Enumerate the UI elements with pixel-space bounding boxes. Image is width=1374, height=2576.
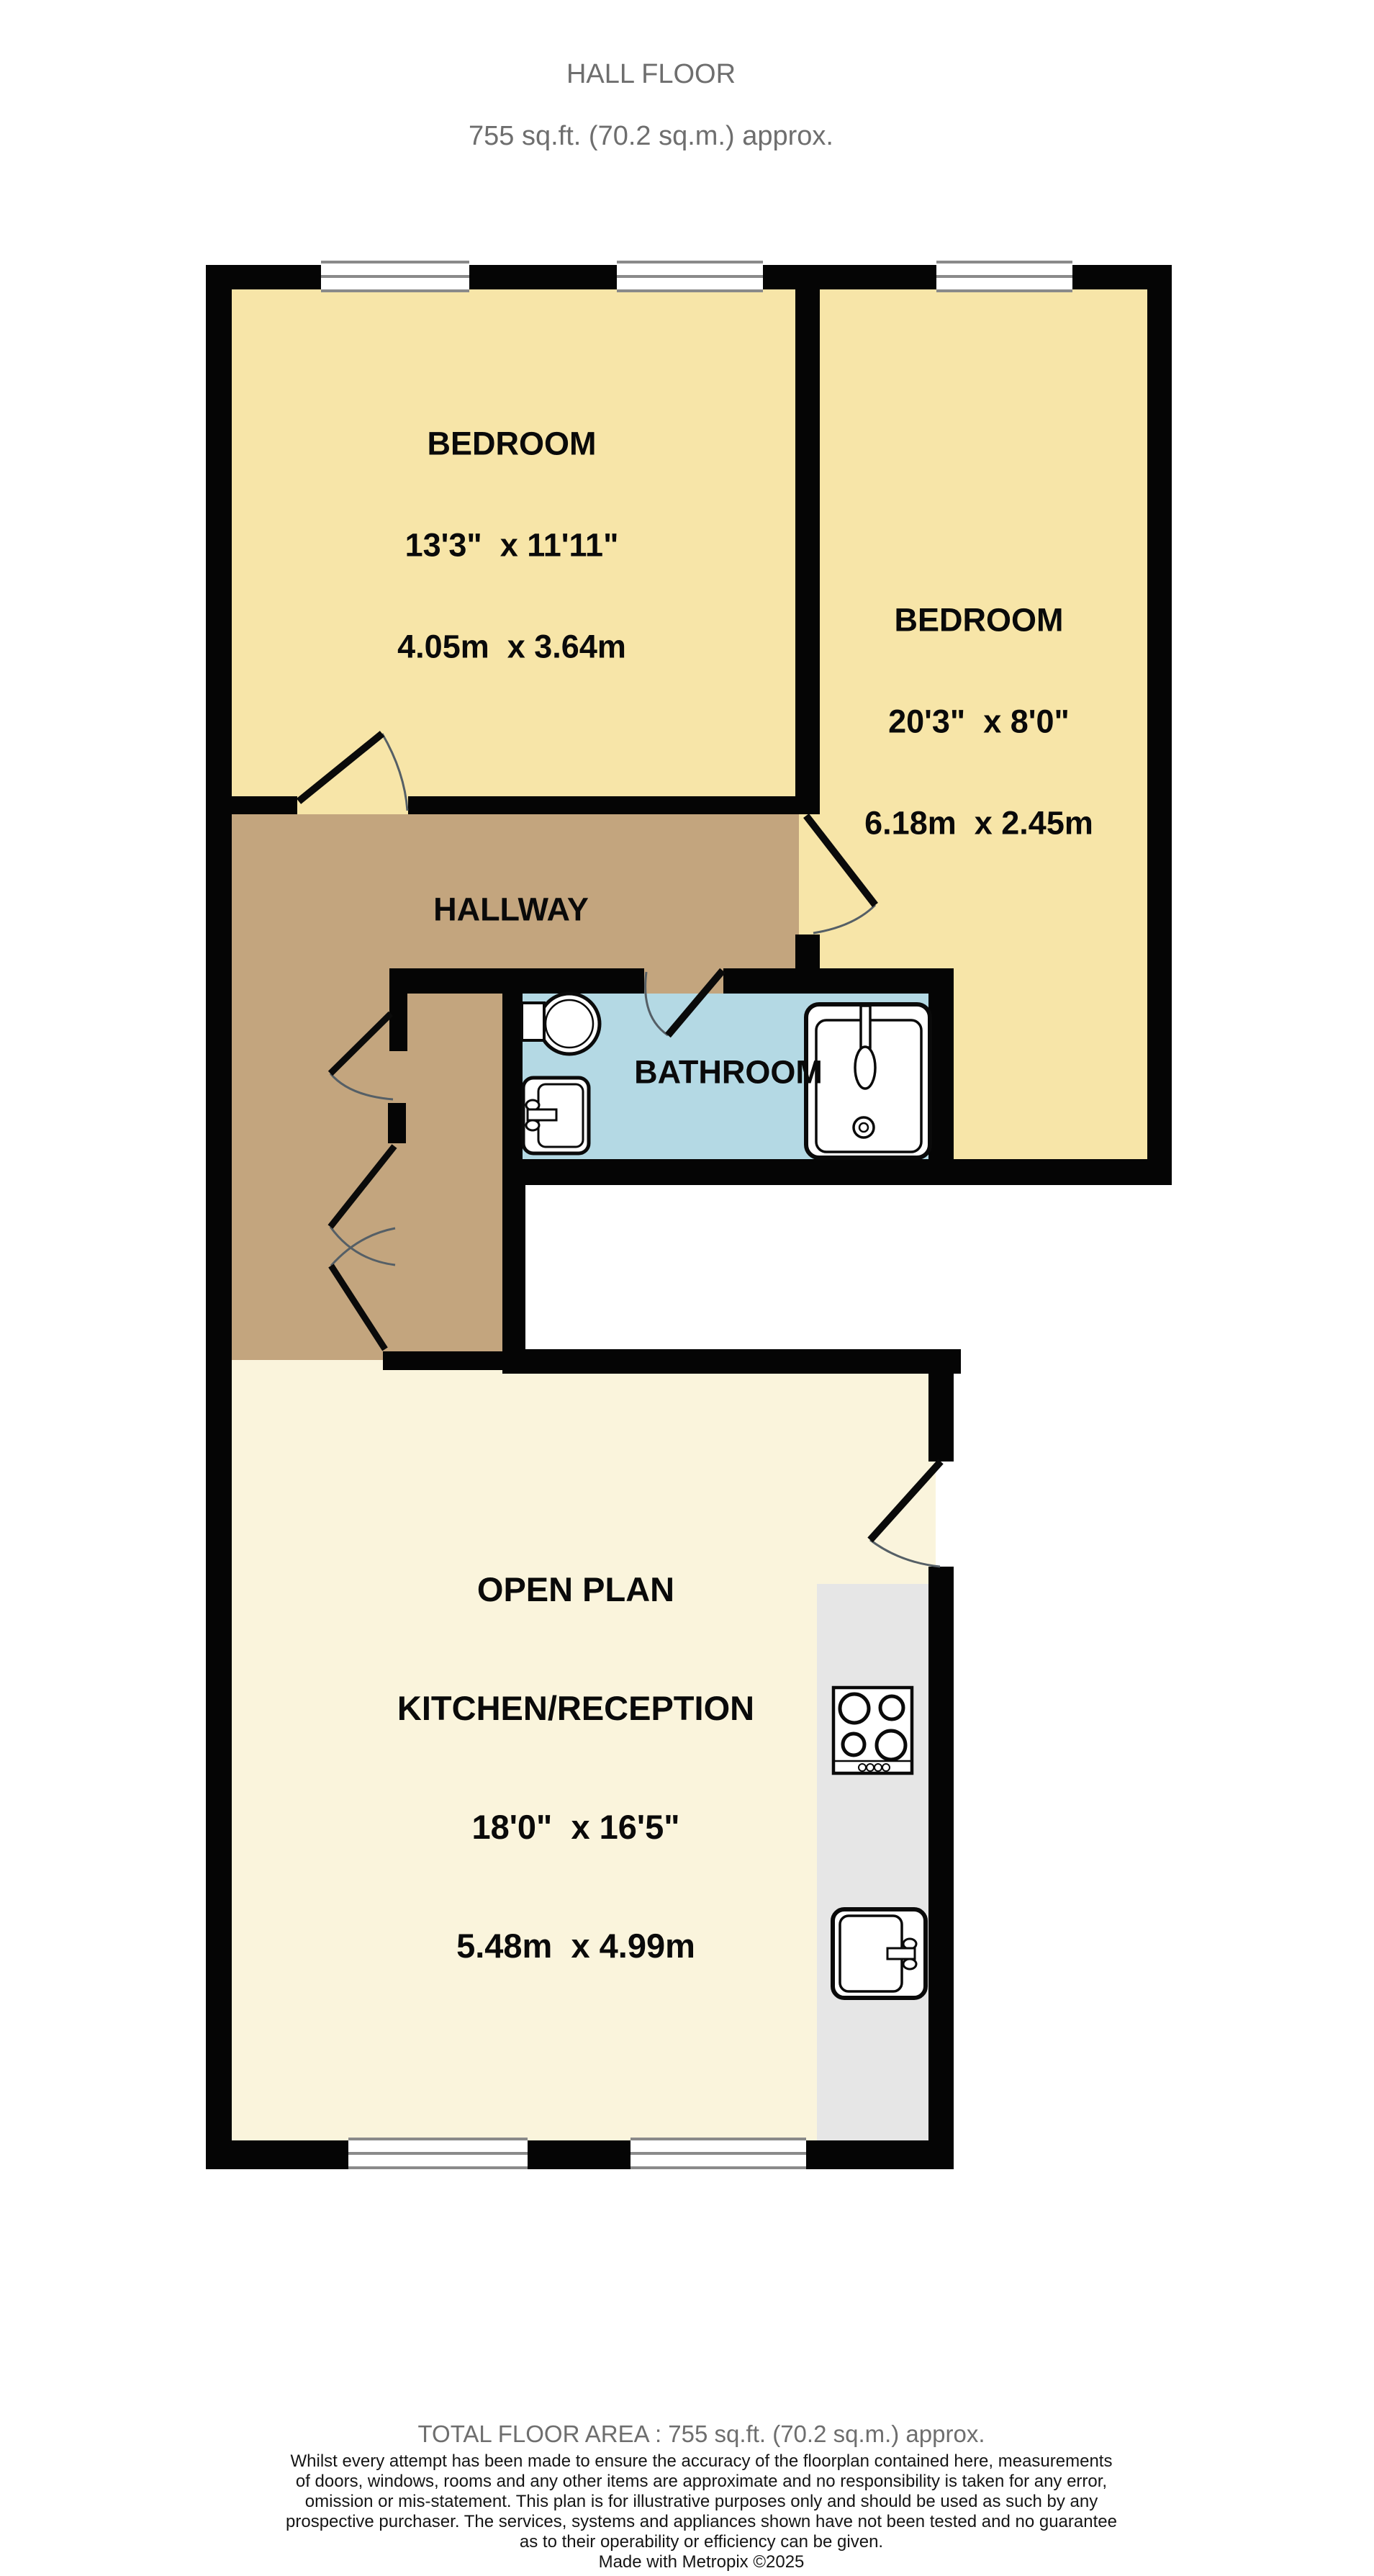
- bedroom2-imperial: 20'3" x 8'0": [864, 705, 1093, 739]
- door-hallway-bifold: [330, 1014, 395, 1349]
- plan-overlay: [0, 0, 1374, 2576]
- door-bedroom1: [299, 734, 407, 811]
- floorplan-page: HALL FLOOR 755 sq.ft. (70.2 sq.m.) appro…: [0, 0, 1374, 2576]
- bathroom-sink-icon: [523, 1078, 589, 1153]
- openplan-metric: 5.48m x 4.99m: [397, 1926, 754, 1965]
- disclaimer-line: Whilst every attempt has been made to en…: [14, 2451, 1374, 2472]
- openplan-imperial: 18'0" x 16'5": [397, 1807, 754, 1847]
- bathtub-icon: [806, 1004, 930, 1158]
- bedroom2-metric: 6.18m x 2.45m: [864, 806, 1093, 840]
- disclaimer-text: Whilst every attempt has been made to en…: [14, 2451, 1374, 2552]
- bedroom2-name: BEDROOM: [864, 603, 1093, 637]
- hallway-label: HALLWAY: [433, 825, 589, 994]
- bedroom1-label: BEDROOM 13'3" x 11'11" 4.05m x 3.64m: [397, 359, 626, 731]
- bathroom-name: BATHROOM: [634, 1055, 823, 1089]
- bedroom1-imperial: 13'3" x 11'11": [397, 528, 626, 562]
- openplan-name-1: OPEN PLAN: [397, 1570, 754, 1609]
- disclaimer-line: as to their operability or efficiency ca…: [14, 2532, 1374, 2552]
- disclaimer-line: of doors, windows, rooms and any other i…: [14, 2472, 1374, 2492]
- bedroom1-name: BEDROOM: [397, 427, 626, 461]
- disclaimer-line: omission or mis-statement. This plan is …: [14, 2492, 1374, 2512]
- disclaimer-line: prospective purchaser. The services, sys…: [14, 2512, 1374, 2532]
- door-openplan: [870, 1462, 941, 1567]
- metropix-credit: Made with Metropix ©2025: [14, 2552, 1374, 2572]
- openplan-name-2: KITCHEN/RECEPTION: [397, 1688, 754, 1728]
- openplan-label: OPEN PLAN KITCHEN/RECEPTION 18'0" x 16'5…: [397, 1490, 754, 2045]
- bedroom1-metric: 4.05m x 3.64m: [397, 630, 626, 664]
- bathroom-label: BATHROOM: [634, 988, 823, 1157]
- hob-icon: [833, 1688, 912, 1773]
- toilet-icon: [522, 994, 600, 1054]
- hallway-name: HALLWAY: [433, 893, 589, 927]
- total-floor-area: TOTAL FLOOR AREA : 755 sq.ft. (70.2 sq.m…: [14, 2420, 1374, 2448]
- bedroom2-label: BEDROOM 20'3" x 8'0" 6.18m x 2.45m: [864, 536, 1093, 908]
- kitchen-sink-icon: [833, 1909, 926, 1998]
